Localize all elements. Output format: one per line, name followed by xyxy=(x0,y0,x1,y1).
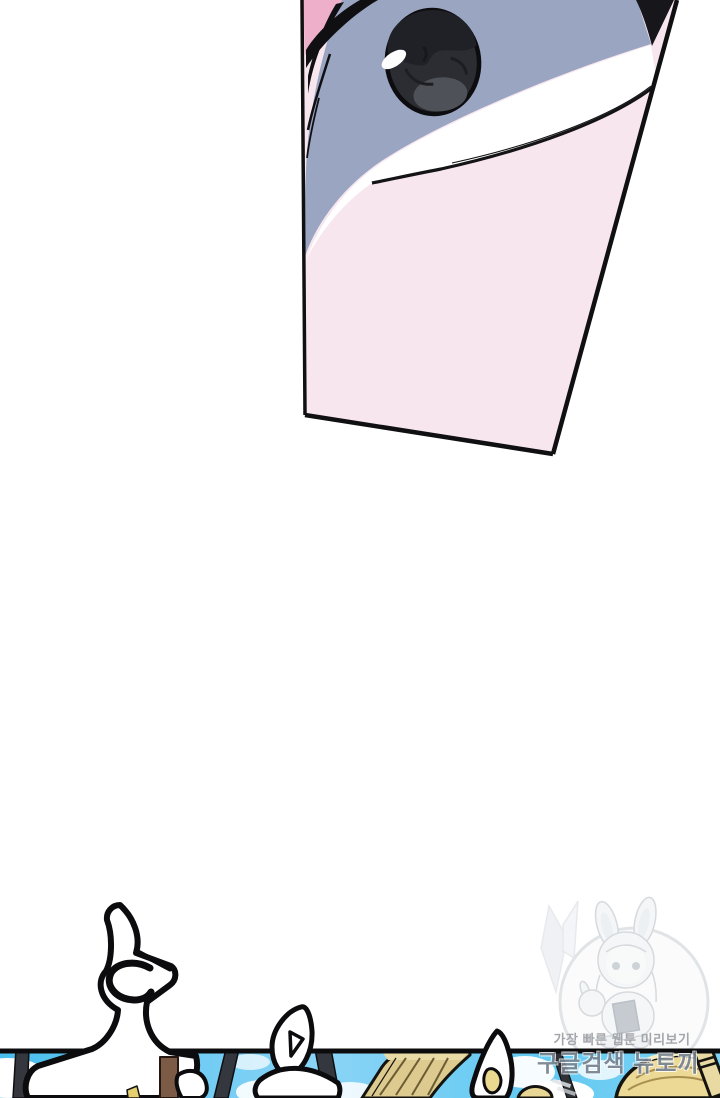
comic-artwork xyxy=(0,0,720,1098)
sfx-blob xyxy=(177,1071,207,1098)
webtoon-page: 가장 빠른 웹툰 미리보기 구글검색 뉴토끼 xyxy=(0,0,720,1098)
watermark-text-line2: 구글검색 뉴토끼 xyxy=(537,1044,705,1078)
